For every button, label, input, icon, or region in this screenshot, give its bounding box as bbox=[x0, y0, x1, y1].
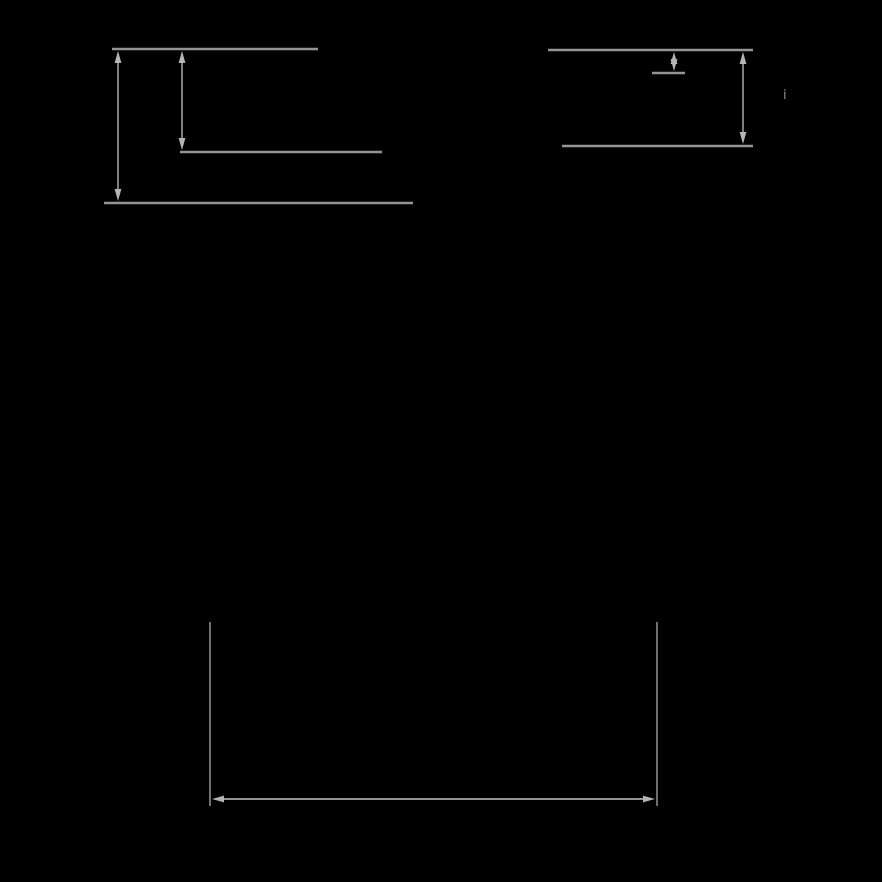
bottom-width-arrow-head-left bbox=[212, 796, 224, 803]
right-span-small-arrow-head-down bbox=[671, 59, 678, 71]
left-span-full-arrow-head-down bbox=[115, 189, 122, 201]
left-span-full-arrow-head-up bbox=[115, 51, 122, 63]
right-span-full-arrow-head-down bbox=[740, 132, 747, 144]
left-span-upper-arrow-head-up bbox=[179, 51, 186, 63]
bottom-width-arrow-head-right bbox=[643, 796, 655, 803]
dimension-diagram bbox=[0, 0, 882, 882]
figure-canvas: i bbox=[0, 0, 882, 882]
left-span-upper-arrow-head-down bbox=[179, 138, 186, 150]
right-span-full-arrow-head-up bbox=[740, 52, 747, 64]
label-i: i bbox=[783, 89, 787, 102]
